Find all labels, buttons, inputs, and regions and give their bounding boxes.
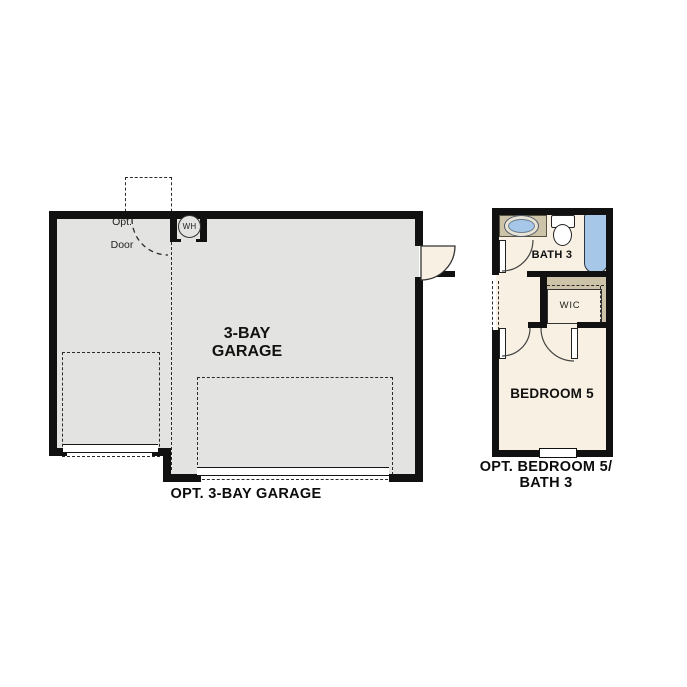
unit-left-wall-lower bbox=[492, 330, 499, 457]
floorplan-canvas: WH Opt. Door 3-BAY GARAGE OPT. 3-BAY GAR… bbox=[0, 0, 687, 687]
wic-left-wall bbox=[540, 277, 547, 328]
water-heater-symbol: WH bbox=[178, 215, 201, 238]
garage-bay-partition-dashed-line bbox=[171, 242, 172, 470]
unit-left-wall-upper bbox=[492, 208, 499, 275]
bath-room-label: BATH 3 bbox=[532, 249, 573, 261]
unit-right-wall bbox=[606, 208, 613, 457]
wic-shelf-dashed-line bbox=[547, 285, 604, 286]
one-bay-door-dashed-outline bbox=[62, 352, 160, 457]
garage-bottom-wall-right-stub bbox=[389, 474, 423, 482]
bedroom-window bbox=[539, 448, 577, 458]
toilet-bowl bbox=[553, 224, 572, 246]
wic-room-label: WIC bbox=[560, 300, 581, 311]
bedroom-unit-caption: OPT. BEDROOM 5/ BATH 3 bbox=[480, 459, 613, 491]
optional-door-label: Opt. Door bbox=[111, 217, 134, 252]
garage-room-label: 3-BAY GARAGE bbox=[212, 325, 282, 361]
bedroom-top-wall-center-stub bbox=[528, 322, 541, 328]
optional-door-label-line1: Opt. bbox=[112, 216, 132, 228]
garage-right-wall-lower bbox=[415, 277, 423, 482]
bathtub-fixture bbox=[584, 213, 608, 273]
one-bay-garage-door bbox=[63, 444, 158, 453]
garage-bottom-wall-left-stub bbox=[163, 474, 201, 482]
water-heater-label: WH bbox=[183, 222, 197, 231]
bedroom-room-label: BEDROOM 5 bbox=[510, 386, 594, 401]
main-bay-door-dashed-outline bbox=[197, 377, 393, 480]
garage-top-wall bbox=[49, 211, 423, 219]
garage-left-wall bbox=[49, 211, 57, 456]
garage-room-label-line1: 3-BAY bbox=[224, 325, 271, 342]
water-heater-closet-bottom-stub-left bbox=[170, 239, 181, 242]
water-heater-closet-bottom-stub-right bbox=[196, 239, 207, 242]
bedroom-unit-caption-line1: OPT. BEDROOM 5/ bbox=[480, 459, 613, 475]
unit-left-wall-dashed-section bbox=[492, 281, 499, 330]
house-wall-stub bbox=[421, 271, 455, 277]
bath-door-leaf bbox=[499, 240, 506, 273]
main-garage-door bbox=[197, 467, 389, 476]
water-heater-closet-left-wall bbox=[170, 211, 177, 242]
garage-right-wall-upper bbox=[415, 211, 423, 246]
bedroom-door-leaf bbox=[499, 328, 506, 359]
bedroom-unit-caption-line2: BATH 3 bbox=[519, 475, 572, 491]
bedroom-top-wall-right-segment bbox=[577, 322, 613, 328]
unit-top-wall bbox=[492, 208, 613, 215]
garage-caption: OPT. 3-BAY GARAGE bbox=[171, 486, 322, 502]
sink-basin bbox=[508, 219, 535, 233]
garage-room-label-line2: GARAGE bbox=[212, 343, 282, 360]
water-heater-closet-right-wall bbox=[200, 211, 207, 242]
optional-door-label-line2: Door bbox=[111, 239, 134, 251]
wic-shelf-dashed-line-vertical bbox=[600, 286, 601, 322]
wic-door-leaf bbox=[571, 328, 578, 359]
sink-fixture bbox=[504, 215, 539, 237]
